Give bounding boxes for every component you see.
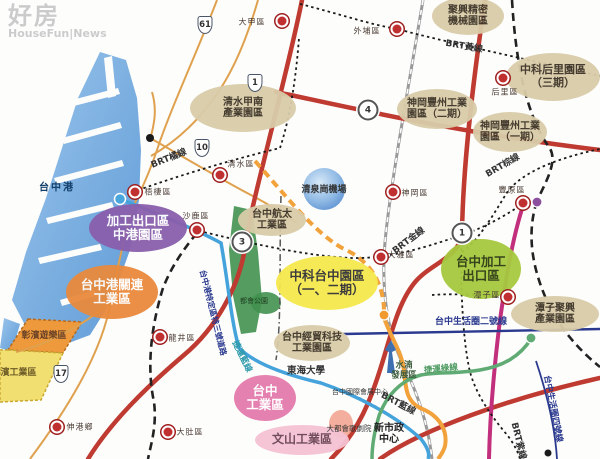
zone-ctsp-taichung: 中科台中園區 （一、二期） [276, 256, 378, 310]
zone-port-related-industrial: 台中港關連 工業區 [66, 265, 158, 319]
district-label-tanzi: 潭子區 [474, 290, 501, 301]
district-label-qingshui: 清水區 [228, 159, 255, 170]
district-dot-dadu [164, 428, 173, 437]
orange-junction-dot [379, 310, 389, 320]
mrt-green-terminal-dot [526, 333, 536, 343]
expo-center-label: 台中國際會展中心 [332, 389, 388, 397]
district-label-wuqi: 梧棲區 [145, 187, 172, 198]
qingshui-junction-dot [146, 134, 154, 142]
district-label-fengyuan: 豐原區 [499, 185, 526, 196]
zone-tanzi-juxing: 潭子聚興 產業園區 [511, 296, 599, 332]
district-label-dajia: 大甲區 [239, 17, 266, 28]
district-label-daya: 大雅區 [388, 250, 415, 261]
watermark-suffix: HouseFun|News [8, 28, 107, 39]
living-circle-2-label: 台中生活圈二號線 [435, 317, 507, 327]
zone-epz-zhonggang: 加工出口區 中港園區 [89, 204, 187, 252]
district-dot-tanzi [504, 293, 513, 302]
district-dot-houli [499, 74, 508, 83]
zone-ctsp-houli: 中科后里園區 （三期） [506, 53, 600, 101]
opera-house-label: 大都會歌劇院 [327, 425, 372, 433]
district-dot-shengang-township [53, 423, 62, 432]
city-hall-label: 新市政 中心 [374, 423, 404, 445]
route-shield-freeway-1: 1 [452, 223, 473, 244]
changbin-industrial-label: 彰濱工業區 [0, 368, 37, 378]
district-dot-daya [377, 253, 386, 262]
zone-shengang-fengzhou-2: 神岡豐州工業 園區（二期） [397, 89, 477, 129]
district-dot-qingshui [216, 171, 225, 180]
tunghai-university-label: 東海大學 [287, 367, 325, 378]
zone-qingshui-jianan: 清水甲南 產業園區 [190, 84, 296, 132]
zone-jingmao-tech: 台中經貿科技 工業園區 [274, 325, 350, 361]
district-label-houli: 后里區 [492, 87, 519, 98]
changbin-fun-label: 彰濱遊樂區 [21, 331, 66, 341]
airport-label: 清泉崗機場 [301, 185, 346, 195]
district-label-dadu: 大肚區 [177, 427, 204, 438]
zone-shengang-fengzhou-1: 神岡豐州工業 園區（一期） [473, 112, 547, 152]
route-shield-freeway-3: 3 [232, 232, 253, 253]
shuinan-label: 水湳 發展區 [391, 361, 417, 380]
district-dot-shalu [193, 226, 202, 235]
watermark-brand: 好房 [8, 4, 107, 28]
district-label-shalu: 沙鹿區 [183, 211, 210, 222]
district-label-shengang-township: 伸港鄉 [67, 422, 94, 433]
taichung-industrial-parks-map: 好房 HouseFun|News 清水甲南 產業園區 聚興精密 機械園區 中科后… [0, 0, 600, 459]
district-dot-fengyuan [519, 199, 528, 208]
district-dot-shengang [389, 188, 398, 197]
district-dot-wuqi [131, 188, 140, 197]
district-dot-dajia [278, 17, 287, 26]
district-label-waipu: 外埔區 [354, 26, 381, 37]
mrt-blue-terminal-dot [115, 194, 126, 205]
port-label: 台中港 [39, 182, 75, 193]
district-label-shengang: 神岡區 [402, 188, 429, 199]
route-shield-freeway-4: 4 [358, 100, 379, 121]
district-dot-waipu [393, 25, 402, 34]
watermark: 好房 HouseFun|News [8, 4, 107, 39]
district-dot-longjing [156, 333, 165, 342]
district-label-longjing: 龍井區 [169, 333, 196, 344]
zone-taichung-aerospace: 台中航太 工業區 [238, 204, 306, 236]
black-terminal-dot [545, 450, 552, 457]
metro-park-label: 都會公園 [240, 298, 268, 306]
zone-taichung-industrial: 台中 工業區 [234, 375, 296, 421]
fengyuan-junction-dot [532, 197, 542, 207]
